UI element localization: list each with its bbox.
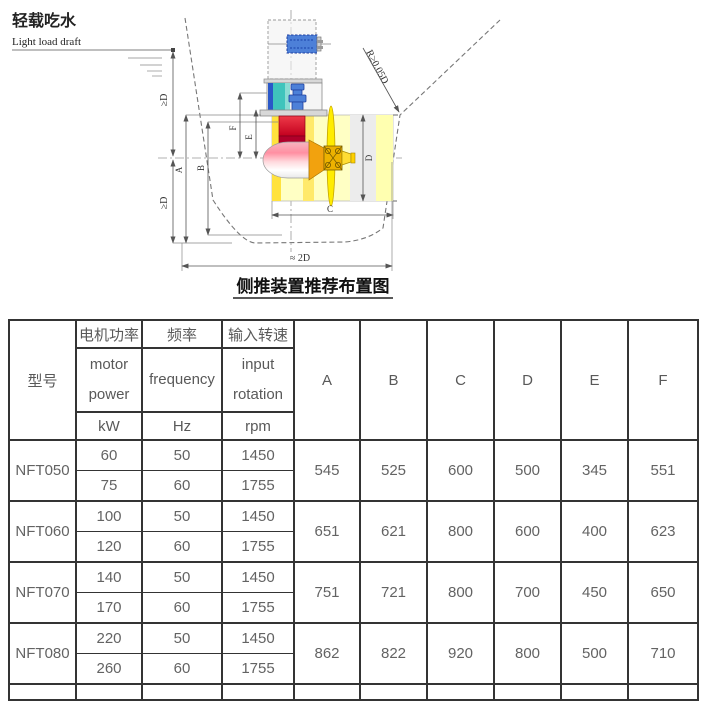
header-dim-d: D <box>494 320 561 440</box>
power-cell <box>76 684 142 700</box>
power-cell: 260 <box>76 654 142 685</box>
svg-text:B: B <box>196 165 206 171</box>
table-row: NFT050 60 50 1450 545 525 600 500 345 55… <box>9 440 698 471</box>
header-frequency-en: frequency <box>142 348 222 412</box>
dim-a-cell: 862 <box>294 623 360 684</box>
dim-d-cell: 700 <box>494 562 561 623</box>
svg-text:≥D: ≥D <box>159 197 170 210</box>
dim-f-cell: 551 <box>628 440 698 501</box>
svg-text:C: C <box>327 204 333 214</box>
svg-text:E: E <box>244 134 254 140</box>
table-row: NFT060 100 50 1450 651 621 800 600 400 6… <box>9 501 698 532</box>
dim-e-cell <box>561 684 628 700</box>
frequency-cell <box>142 684 222 700</box>
diagram-svg: 轻载吃水 Light load draft <box>0 0 707 308</box>
rotation-cell: 1450 <box>222 440 294 471</box>
model-cell: NFT060 <box>9 501 76 562</box>
rotation-cell: 1755 <box>222 532 294 563</box>
spec-table: 型号 电机功率 频率 输入转速 A B C D E F motor power … <box>8 319 699 701</box>
header-input-rotation-zh: 输入转速 <box>222 320 294 348</box>
thruster-arrangement-diagram: 轻载吃水 Light load draft <box>0 0 707 308</box>
frequency-cell: 60 <box>142 532 222 563</box>
dim-c-cell: 800 <box>427 501 494 562</box>
dim-e-cell: 500 <box>561 623 628 684</box>
header-input-rotation-en: input rotation <box>222 348 294 412</box>
dim-a: A <box>173 115 261 243</box>
dim-d-cell: 600 <box>494 501 561 562</box>
dim-e: E <box>244 110 256 158</box>
dim-e-cell: 450 <box>561 562 628 623</box>
table-row: NFT080 220 50 1450 862 822 920 800 500 7… <box>9 623 698 654</box>
power-cell: 75 <box>76 471 142 502</box>
header-motor-power-en: motor power <box>76 348 142 412</box>
header-frequency-zh: 频率 <box>142 320 222 348</box>
rotation-cell: 1450 <box>222 562 294 593</box>
dim-b-cell: 721 <box>360 562 427 623</box>
frequency-cell: 50 <box>142 623 222 654</box>
svg-text:≥D: ≥D <box>159 94 170 107</box>
power-cell: 60 <box>76 440 142 471</box>
dim-a-cell: 545 <box>294 440 360 501</box>
rotation-cell: 1450 <box>222 623 294 654</box>
header-unit-hz: Hz <box>142 412 222 440</box>
dim-c-cell: 600 <box>427 440 494 501</box>
electric-motor <box>287 35 323 53</box>
header-dim-a: A <box>294 320 360 440</box>
dim-d-cell: 500 <box>494 440 561 501</box>
dim-f-cell: 710 <box>628 623 698 684</box>
model-cell: NFT070 <box>9 562 76 623</box>
waterline-corner-mark <box>171 48 175 52</box>
upper-flange <box>264 79 322 83</box>
svg-text:A: A <box>174 166 184 173</box>
header-motor-power-zh: 电机功率 <box>76 320 142 348</box>
svg-text:D: D <box>364 154 374 161</box>
rotation-cell: 1755 <box>222 654 294 685</box>
dim-b-cell: 621 <box>360 501 427 562</box>
power-cell: 120 <box>76 532 142 563</box>
dim-f-cell: 650 <box>628 562 698 623</box>
dim-f: F <box>228 93 267 158</box>
rotation-cell: 1450 <box>222 501 294 532</box>
dim-c: C <box>272 201 393 219</box>
rotation-cell <box>222 684 294 700</box>
header-dim-b: B <box>360 320 427 440</box>
span-note: ≈ 2D <box>290 253 310 264</box>
header-dim-e: E <box>561 320 628 440</box>
dim-e-cell: 400 <box>561 501 628 562</box>
header-model: 型号 <box>9 320 76 440</box>
table-row-clipped <box>9 684 698 700</box>
model-cell <box>9 684 76 700</box>
header-line: motor <box>77 350 141 380</box>
svg-text:侧推装置推荐布置图: 侧推装置推荐布置图 <box>237 276 390 296</box>
header-unit-rpm: rpm <box>222 412 294 440</box>
waterline-annotation: 轻载吃水 Light load draft <box>12 11 175 76</box>
draft-label-en: Light load draft <box>12 36 81 48</box>
model-cell: NFT080 <box>9 623 76 684</box>
radius-leader: R≥0.05D <box>363 48 399 112</box>
header-unit-kw: kW <box>76 412 142 440</box>
table-row: NFT070 140 50 1450 751 721 800 700 450 6… <box>9 562 698 593</box>
propeller-hub <box>324 146 342 170</box>
frequency-cell: 50 <box>142 440 222 471</box>
pod-body <box>263 142 309 178</box>
model-cell: NFT050 <box>9 440 76 501</box>
hub-tip <box>351 153 355 163</box>
dim-f-cell: 623 <box>628 501 698 562</box>
frequency-cell: 60 <box>142 654 222 685</box>
dim-c-cell <box>427 684 494 700</box>
dim-c-cell: 920 <box>427 623 494 684</box>
draft-label-zh: 轻载吃水 <box>12 11 77 30</box>
header-dim-f: F <box>628 320 698 440</box>
radius-note: R≥0.05D <box>363 48 390 86</box>
power-cell: 170 <box>76 593 142 624</box>
dim-c-cell: 800 <box>427 562 494 623</box>
frequency-cell: 60 <box>142 471 222 502</box>
dim-d-cell <box>494 684 561 700</box>
vertical-drive <box>268 83 306 110</box>
dim-b: B <box>196 122 282 235</box>
dim-a-cell: 751 <box>294 562 360 623</box>
rotation-cell: 1755 <box>222 471 294 502</box>
header-dim-c: C <box>427 320 494 440</box>
header-line: frequency <box>143 365 221 395</box>
dim-ge-d-lower: ≥D <box>159 160 173 243</box>
dim-b-cell: 525 <box>360 440 427 501</box>
dim-a-cell: 651 <box>294 501 360 562</box>
header-line: input <box>223 350 293 380</box>
frequency-cell: 50 <box>142 501 222 532</box>
dim-b-cell: 822 <box>360 623 427 684</box>
frequency-cell: 50 <box>142 562 222 593</box>
rotation-cell: 1755 <box>222 593 294 624</box>
power-cell: 140 <box>76 562 142 593</box>
base-plate <box>260 110 327 116</box>
dim-f-cell <box>628 684 698 700</box>
dim-a-cell <box>294 684 360 700</box>
frequency-cell: 60 <box>142 593 222 624</box>
power-cell: 220 <box>76 623 142 654</box>
header-line: power <box>77 380 141 410</box>
water-level-icon <box>128 58 162 76</box>
dim-e-cell: 345 <box>561 440 628 501</box>
gearbox <box>279 116 305 143</box>
dim-b-cell <box>360 684 427 700</box>
dim-d-cell: 800 <box>494 623 561 684</box>
diagram-caption: 侧推装置推荐布置图 <box>233 276 393 298</box>
spec-table-section: 型号 电机功率 频率 输入转速 A B C D E F motor power … <box>8 319 707 701</box>
power-cell: 100 <box>76 501 142 532</box>
svg-text:F: F <box>228 125 238 130</box>
dim-ge-d-upper: ≥D <box>159 52 173 156</box>
header-line: rotation <box>223 380 293 410</box>
